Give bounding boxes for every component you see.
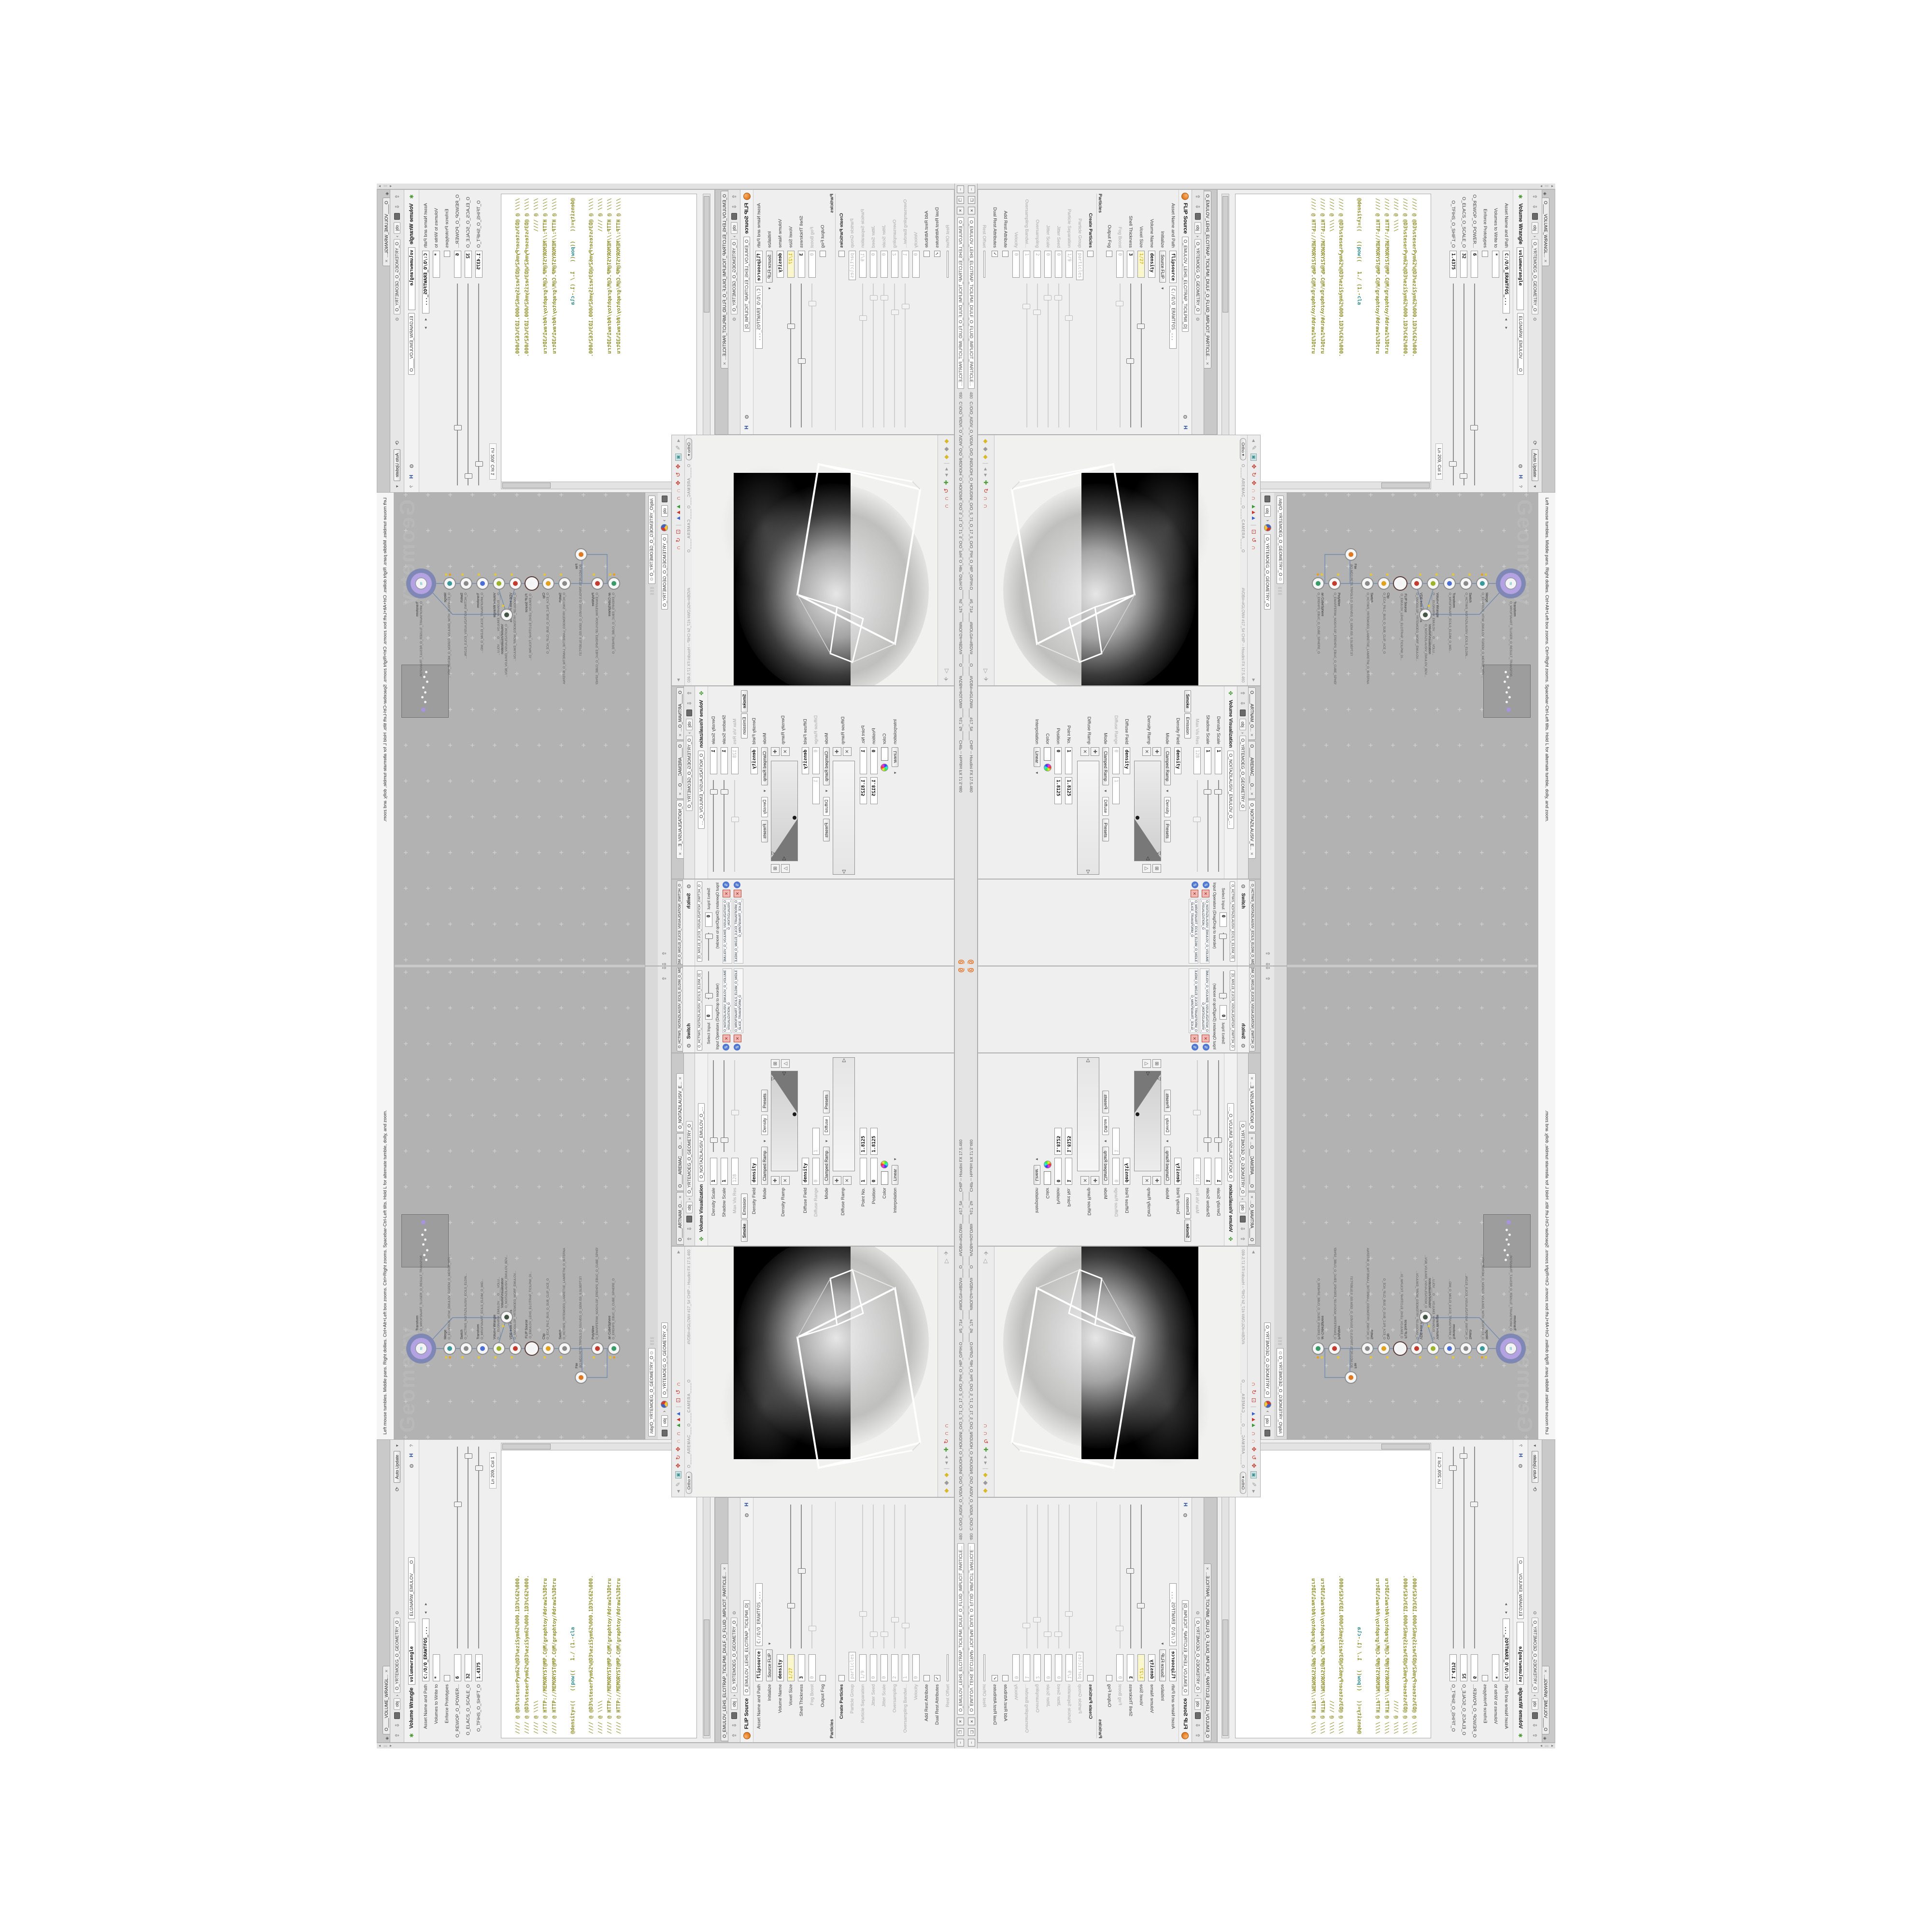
shadow-scale-field[interactable]: 1 xyxy=(1205,1158,1212,1185)
gear-icon[interactable]: ⚙ xyxy=(743,413,751,421)
magnet-c-icon[interactable]: ∩ xyxy=(943,504,950,509)
spinner-left-icon[interactable]: ◂ xyxy=(1504,316,1509,322)
create-particles-checkbox[interactable] xyxy=(838,1675,845,1681)
volviz-name-chip[interactable]: O_NOITAZILAUSIV_EMULOV_O_VO] xyxy=(698,751,705,829)
pane-edge-scrollbar[interactable]: ▲⣿▼ xyxy=(978,1743,1555,1748)
wrangle-name-field[interactable]: volumewrangle xyxy=(1517,1622,1524,1685)
density-presets-button[interactable]: Presets xyxy=(761,820,768,843)
pin-icon[interactable]: ⊙ xyxy=(1532,316,1538,322)
edit-pencil-icon[interactable]: ✎ xyxy=(675,1482,682,1487)
breadcrumb-obj[interactable]: obj xyxy=(394,1698,400,1710)
ramp-expand-icon[interactable]: ⊞ xyxy=(771,1059,780,1068)
wrangle-name-field[interactable]: volumewrangle xyxy=(1517,247,1524,310)
select-arrow-icon[interactable]: ◂ xyxy=(675,439,682,442)
scale-slider[interactable] xyxy=(1463,284,1464,485)
ortho-button[interactable]: Ortho ▾ xyxy=(1240,438,1247,460)
flip-path-select[interactable]: C:/O/O_ERAWTFOS_... xyxy=(755,1583,763,1646)
voxel-size-field[interactable]: 1/27 xyxy=(1138,1654,1145,1681)
volumes-field[interactable]: * xyxy=(433,1654,440,1681)
wrangle-name-mirror-tab[interactable]: ELGNARW_EMULOV____O xyxy=(408,1557,415,1619)
density-ramp-widget[interactable]: ◁▽ xyxy=(1134,761,1161,861)
tab-mantra[interactable]: O____ARTNAM_O...✕ xyxy=(676,687,683,740)
auto-update-button[interactable]: Auto Update xyxy=(1532,1451,1538,1483)
diffuse-presets-button[interactable]: Presets xyxy=(823,1091,830,1113)
ramp-add-icon[interactable]: ✚ xyxy=(1152,747,1161,756)
emission-tab[interactable]: Emission xyxy=(741,713,748,739)
ramp-add-icon[interactable]: ✚ xyxy=(1091,747,1099,756)
shade-diamond-icon[interactable]: ◆ xyxy=(983,439,990,443)
render-magnet-icon[interactable]: ∩ xyxy=(1250,1382,1257,1386)
node-result-transform-selected[interactable]: ≈ TransformO_MROFSNART_TLUSER_O_RESULT_T… xyxy=(1496,568,1526,598)
diffuse-field-field[interactable]: density xyxy=(1123,747,1131,774)
breadcrumb-path[interactable]: O_YRTEMOEG_O_GEOMETRY_O xyxy=(1532,239,1538,314)
emission-tab[interactable]: Emission xyxy=(1184,1193,1191,1219)
shell-thickness-field[interactable]: 3 xyxy=(798,1654,805,1681)
nav-back-icon[interactable]: ⇧ xyxy=(685,1235,693,1243)
oversampling-bandwidth-field[interactable]: 1 xyxy=(1023,251,1031,278)
add-icon[interactable]: ✚ xyxy=(943,480,950,485)
add-rest-checkbox[interactable] xyxy=(1003,1675,1009,1681)
window-restore-button[interactable]: ❐ xyxy=(957,196,964,204)
ramp-add-icon[interactable]: ✚ xyxy=(1152,1176,1161,1185)
tab-close-icon[interactable]: ✕ xyxy=(723,1567,727,1570)
network-canvas[interactable]: + + + + + + + + + + + + + + + + + + + + … xyxy=(395,493,645,965)
spinner-left-icon[interactable]: ◂ xyxy=(1504,1610,1509,1616)
remove-input-icon[interactable]: ✕ xyxy=(1202,1035,1209,1042)
network-path-tab[interactable]: /obj/O_YRTEMOEG_O_GEOMETRY_O ⊙ xyxy=(648,496,655,584)
nav-back-icon[interactable]: ⇧ xyxy=(1194,193,1202,200)
jitter-scale-field[interactable]: 0 xyxy=(1045,251,1052,278)
smoke-tab[interactable]: Smoke xyxy=(1184,690,1191,712)
vex-code-editor[interactable]: //// @ @D3%steserPym62%@D3%eziSym62%000.… xyxy=(1235,1448,1431,1738)
shift-slider[interactable] xyxy=(478,284,479,485)
shadow-scale-slider[interactable] xyxy=(1207,780,1208,872)
ramp-add-icon[interactable]: ✚ xyxy=(771,1176,780,1185)
switch-name-chip[interactable]: O_HCTIWS_NOITAZILAUSIV_ECILS_ELDIM_O] xyxy=(697,881,702,962)
initialize-select[interactable]: Source FLIP xyxy=(766,251,773,283)
shadow-scale-field[interactable]: 1 xyxy=(1205,747,1212,774)
viewport-canvas[interactable] xyxy=(994,1247,1240,1497)
position-field[interactable]: 0 xyxy=(870,747,878,774)
add-rest-checkbox[interactable] xyxy=(923,251,930,257)
diffuse-ramp-tab[interactable]: Diffuse xyxy=(823,797,830,816)
oversampling-bandwidth-field[interactable]: 1 xyxy=(902,1654,909,1681)
diffuse-ramp-widget[interactable]: ▷ xyxy=(1077,1057,1099,1171)
breadcrumb-path[interactable]: O_YRTEMOEG_O_GEOMETRY_O xyxy=(1532,1618,1538,1693)
play-icon[interactable]: ▷ xyxy=(983,669,990,673)
power-slider[interactable] xyxy=(1474,1447,1475,1648)
diffuse-range-hi[interactable]: 1 xyxy=(1113,777,1120,804)
window-close-button[interactable]: ✕ xyxy=(968,207,975,214)
density-scale-field[interactable]: 1 xyxy=(710,1158,717,1185)
add-rest-checkbox[interactable] xyxy=(1003,251,1009,257)
density-scale-field[interactable]: 1 xyxy=(1215,1158,1222,1185)
nav-back-icon[interactable]: ⇧ xyxy=(730,1732,738,1739)
shell-thickness-slider[interactable] xyxy=(1130,1505,1131,1648)
scale-tool-icon[interactable]: ✥ xyxy=(675,1447,682,1451)
ramp-del-icon[interactable]: ✕ xyxy=(1142,747,1151,756)
network-geometry-tab[interactable]: O_YRTEMOEG_O_GEOMETRY_O xyxy=(661,1322,668,1398)
breadcrumb-obj[interactable]: obj xyxy=(686,1202,693,1213)
max-vis-res-slider[interactable] xyxy=(1197,1060,1198,1152)
window-minimize-button[interactable]: – xyxy=(968,185,975,193)
select-input-field[interactable]: 0 xyxy=(1220,1005,1227,1020)
magnet-b-icon[interactable]: ∩ xyxy=(983,497,990,501)
rotate-tool-icon[interactable]: ↻ xyxy=(675,1455,682,1460)
view-box-icon[interactable]: ▣ xyxy=(1251,454,1257,461)
particle-separation-slider[interactable] xyxy=(862,284,863,427)
density-field-field[interactable]: density xyxy=(751,747,758,774)
position-field[interactable]: 0 xyxy=(870,1158,878,1185)
window-tab[interactable]: O_EMULOV_LEHS_ELCITRAP_TICILPMI_DIULF_O_… xyxy=(968,217,975,389)
scrollbar-grip[interactable]: ⣿ xyxy=(1545,185,1548,187)
frame-back-icon[interactable]: ◂ xyxy=(983,468,990,470)
breadcrumb-obj[interactable]: obj xyxy=(1239,719,1246,730)
pin-icon[interactable]: ⊙ xyxy=(1532,1610,1538,1616)
breadcrumb-path[interactable]: O_YRTEMOEG_O_GEOMETRY_O xyxy=(686,1121,693,1196)
node-result-transform-selected[interactable]: ≈ TransformO_MROFSNART_TLUSER_O_RESULT_T… xyxy=(1496,1334,1526,1364)
color-swatch[interactable] xyxy=(881,1171,888,1185)
net-down-icon[interactable]: ⇩ xyxy=(1264,960,1272,966)
oversampling-bandwidth-slider[interactable] xyxy=(1026,1505,1027,1648)
auto-update-button[interactable]: Auto Update xyxy=(394,449,400,481)
snap-magnet-dim-icon[interactable]: ∩ xyxy=(1250,1439,1257,1444)
jitter-seed-slider[interactable] xyxy=(873,1505,874,1648)
network-obj-tab[interactable]: obj xyxy=(661,1415,668,1427)
enforce-checkbox[interactable] xyxy=(444,1675,450,1681)
add-icon[interactable]: ✚ xyxy=(983,480,990,485)
particle-separation-slider[interactable] xyxy=(1069,1505,1070,1648)
scroll-down-arrow[interactable]: ▼ xyxy=(389,185,393,188)
gear-icon[interactable]: ⚙ xyxy=(408,1462,415,1470)
breadcrumb-path[interactable]: O_YRTEMOEG_O_GEOMETRY_O xyxy=(1239,736,1246,811)
gear-icon[interactable]: ⚙ xyxy=(743,1511,751,1519)
view-box-icon[interactable]: ▣ xyxy=(675,454,682,461)
rest-offset-field[interactable] xyxy=(947,1654,949,1681)
ramp-add-icon[interactable]: ✚ xyxy=(833,1176,841,1185)
input-operator-2[interactable]: O_MROFSNART_ECILS_ELDIM_O_MIDLE_SLICE_TR… xyxy=(1189,968,1198,1033)
scale-field[interactable]: 32 xyxy=(1461,1654,1468,1681)
flip-path-select[interactable]: C:/O/O_ERAWTFOS_... xyxy=(755,286,763,349)
tab-flip-source[interactable]: O_EMULOV_LEHS_ELCITRAP_TICILPMI_DIULF_O_… xyxy=(1204,1563,1211,1741)
tab-close-icon[interactable]: ✕ xyxy=(1206,362,1210,365)
color-wheel-icon[interactable] xyxy=(881,764,888,771)
point-no-field[interactable]: 1 xyxy=(860,1158,867,1185)
value1-field[interactable]: 1.8125 xyxy=(1065,1128,1073,1155)
ramp-tri-icon[interactable]: △ xyxy=(781,1059,790,1068)
voxel-size-slider[interactable] xyxy=(1141,284,1142,427)
node-result-transform-selected[interactable]: ≈ TransformO_MROFSNART_TLUSER_O_RESULT_T… xyxy=(406,568,436,598)
help-icon[interactable]: ? xyxy=(1518,1443,1523,1449)
add-icon[interactable]: ✚ xyxy=(943,1447,950,1452)
density-presets-button[interactable]: Presets xyxy=(1164,1090,1171,1112)
power-slider[interactable] xyxy=(457,284,458,485)
pane-edge-scrollbar[interactable]: ▲⣿▼ xyxy=(377,1743,954,1748)
nav-forward-icon[interactable]: ⇩ xyxy=(1531,1721,1539,1729)
create-particles-checkbox[interactable] xyxy=(1088,251,1094,257)
interpolation-select[interactable]: Linear xyxy=(892,747,898,767)
volumes-field[interactable]: * xyxy=(1492,1654,1500,1681)
snap-magnet-dim-icon[interactable]: ∩ xyxy=(675,1439,682,1444)
recook-icon[interactable]: ⟳ xyxy=(393,1485,401,1493)
remove-input-icon[interactable]: ✕ xyxy=(1202,890,1209,897)
tab-volume-wrangle[interactable]: O____VOLUME_WRANGL...✕ xyxy=(383,1666,390,1734)
oversampling-bandwidth-slider[interactable] xyxy=(1026,284,1027,427)
nav-forward-icon[interactable]: ⇩ xyxy=(393,203,401,211)
window-restore-button[interactable]: ❐ xyxy=(968,196,975,204)
net-down-icon[interactable]: ⇩ xyxy=(661,966,668,972)
rotate-tool-icon[interactable]: ↻ xyxy=(1250,472,1257,477)
volviz-name-chip[interactable]: O_NOITAZILAUSIV_EMULOV_O_VO] xyxy=(1227,1103,1234,1181)
tab-camera[interactable]: O____AREMAC___O...✕ xyxy=(1249,741,1256,799)
diffuse-mode-select[interactable]: Clamped Ramp xyxy=(1102,1147,1109,1185)
scale-tool-icon[interactable]: ✥ xyxy=(1250,1447,1257,1451)
shade-diamond2-icon[interactable]: ◆ xyxy=(983,1481,990,1485)
select-arrow-icon[interactable]: ◂ xyxy=(1250,439,1257,442)
fog-boost-field[interactable]: 0 xyxy=(809,251,816,278)
output-fog-checkbox[interactable] xyxy=(820,251,826,257)
help-icon[interactable]: ? xyxy=(1518,483,1523,489)
window-close-button[interactable]: ✕ xyxy=(968,1718,975,1725)
rest-offset-field[interactable] xyxy=(947,251,949,278)
flip-name-chip[interactable]: O_EMULOV_LEHS_ELCITRAP_TICILPMI_D] xyxy=(1182,1600,1189,1695)
shade-diamond3-icon[interactable]: ◆ xyxy=(943,1473,950,1477)
magnet-b-icon[interactable]: ∩ xyxy=(943,497,950,501)
fog-boost-slider[interactable] xyxy=(1120,284,1121,427)
ortho-button[interactable]: Ortho ▾ xyxy=(1240,1472,1247,1494)
particle-separation-field[interactable]: 1/9 xyxy=(1066,251,1073,278)
tab-close-icon[interactable]: ✕ xyxy=(1206,1567,1210,1570)
diffuse-field-field[interactable]: density xyxy=(1123,1158,1131,1185)
velocity-field[interactable]: 0 xyxy=(1013,251,1020,278)
snap-magnet-icon[interactable]: ∩ xyxy=(1250,1432,1257,1436)
jitter-seed-field[interactable]: 0 xyxy=(870,1654,877,1681)
density-ramp-widget[interactable]: ◁▽ xyxy=(771,761,798,861)
shift-slider[interactable] xyxy=(478,1447,479,1648)
select-arrow-icon[interactable]: ◂ xyxy=(1250,1490,1257,1493)
move-tool-icon[interactable]: ✥ xyxy=(1250,464,1257,469)
gear-icon[interactable]: ⚙ xyxy=(1517,1462,1524,1470)
tab-flip-source[interactable]: O_EMULOV_LEHS_ELCITRAP_TICILPMI_DIULF_O_… xyxy=(1204,191,1211,369)
shade-diamond2-icon[interactable]: ◆ xyxy=(983,447,990,451)
flip-path-select[interactable]: C:/O/O_ERAWTFOS_... xyxy=(1170,286,1177,349)
scale-slider[interactable] xyxy=(468,1447,469,1648)
oversampling-bandwidth-slider[interactable] xyxy=(905,1505,906,1648)
smoke-tab[interactable]: Smoke xyxy=(1184,1220,1191,1242)
voxel-size-field[interactable]: 1/27 xyxy=(787,251,795,278)
density-ramp-widget[interactable]: ◁▽ xyxy=(771,1071,798,1171)
flip-path-select[interactable]: C:/O/O_ERAWTFOS_... xyxy=(1170,1583,1177,1646)
breadcrumb-path[interactable]: O_YRTEMOEG_O_GEOMETRY_O xyxy=(686,736,693,811)
tab-switch[interactable]: O_HCTIWS_NOITAZILAUSIV_ECILS_ELDIM_O_MID… xyxy=(1250,881,1255,965)
recook-icon[interactable]: ⟳ xyxy=(393,439,401,447)
input-operator-2[interactable]: O_MROFSNART_ECILS_ELDIM_O_MIDLE_SLICE_TR… xyxy=(734,899,743,964)
select-input-slider[interactable] xyxy=(1223,933,1224,961)
nav-back-icon[interactable]: ⇧ xyxy=(1531,1732,1539,1739)
nav-back-icon[interactable]: ⇧ xyxy=(393,193,401,200)
render-region-icon[interactable]: ⊡ xyxy=(1250,1398,1257,1403)
gear-icon[interactable]: ⚙ xyxy=(1181,1511,1189,1519)
jitter-scale-field[interactable]: 0 xyxy=(881,1654,888,1681)
tab-volume-wrangle[interactable]: O____VOLUME_WRANGL...✕ xyxy=(1542,198,1549,266)
fly-icon[interactable]: ✈ xyxy=(983,1250,990,1255)
density-scale-slider[interactable] xyxy=(1218,1060,1219,1152)
spinner-right-icon[interactable]: ▸ xyxy=(423,1601,428,1607)
fog-boost-field[interactable]: 0 xyxy=(809,1654,816,1681)
network-obj-tab[interactable]: obj xyxy=(1264,505,1271,517)
jitter-seed-field[interactable]: 0 xyxy=(1055,1654,1063,1681)
reorder-icon[interactable]: ⇅ xyxy=(1192,1044,1198,1051)
tab-volume-visualization[interactable]: O_NOITAZILAUSIV_E...✕ xyxy=(1249,800,1256,859)
value2-field[interactable]: 1.8125 xyxy=(1055,777,1062,804)
asset-path-select[interactable]: C:/O/O_ERAWTFOS_... xyxy=(422,251,429,313)
dropdown-arrow-icon[interactable]: ▾ xyxy=(767,1641,772,1647)
density-scale-field[interactable]: 1 xyxy=(710,747,717,774)
magnet-b-icon[interactable]: ∩ xyxy=(983,1431,990,1435)
flip-name-chip[interactable]: O_EMULOV_LEHS_ELCITRAP_TICILPMI_D] xyxy=(1182,237,1189,332)
spinner-right-icon[interactable]: ▸ xyxy=(1504,1601,1509,1607)
code-vscrollbar[interactable] xyxy=(1241,1443,1431,1450)
power-slider[interactable] xyxy=(1474,284,1475,485)
diffuse-mode-select[interactable]: Clamped Ramp xyxy=(823,747,830,785)
frame-fwd-icon[interactable]: ▸ xyxy=(943,1455,950,1458)
loop-icon[interactable]: ↻ xyxy=(943,1439,950,1444)
volume-name-field[interactable]: density xyxy=(1149,251,1156,278)
dual-rest-checkbox[interactable]: ✓ xyxy=(992,251,998,257)
fog-boost-slider[interactable] xyxy=(811,1505,812,1648)
diffuse-ramp-widget[interactable]: ▷ xyxy=(833,761,855,875)
tab-close-icon[interactable]: ✕ xyxy=(384,1669,389,1673)
pane-menu-icon[interactable]: ◈ xyxy=(384,1735,390,1741)
select-input-field[interactable]: 0 xyxy=(705,912,712,927)
point-no-field[interactable]: 1 xyxy=(1065,1158,1073,1185)
flip-name-field[interactable]: flipsource xyxy=(1170,251,1177,283)
ramp-tri-icon[interactable]: △ xyxy=(1142,1059,1151,1068)
play-icon[interactable]: ▷ xyxy=(983,1259,990,1263)
magnet-c-icon[interactable]: ∩ xyxy=(943,1424,950,1428)
jitter-seed-field[interactable]: 0 xyxy=(870,251,877,278)
jitter-scale-slider[interactable] xyxy=(883,284,884,427)
loop-icon[interactable]: ↻ xyxy=(983,488,990,493)
breadcrumb-obj[interactable]: obj xyxy=(1239,1202,1246,1213)
breadcrumb-obj[interactable]: obj xyxy=(1532,222,1538,234)
shadow-scale-slider[interactable] xyxy=(1207,1060,1208,1152)
diffuse-range-lo[interactable]: 0 xyxy=(812,1158,820,1185)
remove-input-icon[interactable]: ✕ xyxy=(1191,1035,1198,1042)
max-vis-res-field[interactable]: 128 xyxy=(1194,1158,1201,1185)
scale-tool-icon[interactable]: ✥ xyxy=(675,481,682,485)
network-canvas[interactable]: + + + + + + + + + + + + + + + + + + + + … xyxy=(395,967,645,1439)
spinner-right-icon[interactable]: ▸ xyxy=(1504,325,1509,331)
spinner-left-icon[interactable]: ◂ xyxy=(423,316,428,322)
viewport-menu-icon[interactable]: ▸ xyxy=(1250,679,1257,682)
scrollbar-grip[interactable]: ⣿ xyxy=(384,1744,387,1747)
diffuse-ramp-tab[interactable]: Diffuse xyxy=(1102,1116,1109,1136)
input-operator-1[interactable]: O_NOITAZILAUSIV_EMULOV_O_VOLUME_VISUALIZ… xyxy=(723,899,732,964)
volviz-name-chip[interactable]: O_NOITAZILAUSIV_EMULOV_O_VO] xyxy=(1227,751,1234,829)
volumes-field[interactable]: * xyxy=(1492,251,1500,278)
asset-path-select[interactable]: C:/O/O_ERAWTFOS_... xyxy=(422,1619,429,1681)
oversampling-bandwidth-slider[interactable] xyxy=(905,284,906,427)
flip-name-field[interactable]: flipsource xyxy=(755,1649,763,1681)
dropdown-arrow-icon[interactable]: ▾ xyxy=(1160,1641,1165,1647)
shadow-scale-slider[interactable] xyxy=(724,1060,724,1152)
tab-switch[interactable]: O_HCTIWS_NOITAZILAUSIV_ECILS_ELDIM_O_MID… xyxy=(677,967,682,1051)
scrollbar-grip[interactable]: ⣿ xyxy=(1545,1744,1548,1747)
render-loop-icon[interactable]: ↺ xyxy=(675,538,682,542)
tab-mantra[interactable]: O____ARTNAM_O...✕ xyxy=(1249,1192,1256,1245)
enforce-checkbox[interactable] xyxy=(1482,1675,1489,1681)
tab-volume-visualization[interactable]: O_NOITAZILAUSIV_E...✕ xyxy=(676,800,683,859)
remove-input-icon[interactable]: ✕ xyxy=(1191,890,1198,897)
view-box-icon[interactable]: ▣ xyxy=(1251,1471,1257,1478)
color-swatch[interactable] xyxy=(1044,747,1051,761)
nav-back-icon[interactable]: ⇧ xyxy=(730,193,738,200)
initialize-select[interactable]: Source FLIP xyxy=(766,1649,773,1681)
max-vis-res-slider[interactable] xyxy=(734,1060,735,1152)
tab-close-icon[interactable]: ✕ xyxy=(1544,1669,1548,1673)
position-field[interactable]: 0 xyxy=(1055,747,1062,774)
nav-forward-icon[interactable]: ⇩ xyxy=(1239,699,1247,707)
shift-field[interactable]: 1.4375 xyxy=(1450,251,1457,278)
volume-name-field[interactable]: density xyxy=(777,251,784,278)
net-up-icon[interactable]: ⇧ xyxy=(661,950,668,957)
shadow-scale-field[interactable]: 1 xyxy=(721,747,728,774)
tab-close-icon[interactable]: ✕ xyxy=(723,362,727,365)
power-field[interactable]: 6 xyxy=(454,1654,461,1681)
dropdown-arrow-icon[interactable]: ▾ xyxy=(767,285,772,291)
remove-input-icon[interactable]: ✕ xyxy=(734,890,741,897)
scroll-up-arrow[interactable]: ▲ xyxy=(378,185,382,188)
breadcrumb-path[interactable]: O_YRTEMOEG_O_GEOMETRY_O xyxy=(394,239,400,314)
tab-volume-wrangle[interactable]: O____VOLUME_WRANGL...✕ xyxy=(383,198,390,266)
color-wheel-icon[interactable] xyxy=(881,1161,888,1168)
axis-tripod-icon[interactable]: ▲▲▲ xyxy=(1250,504,1257,521)
auto-update-button[interactable]: Auto Update xyxy=(394,1451,400,1483)
fly-icon[interactable]: ✈ xyxy=(943,1250,950,1255)
diffuse-range-hi[interactable]: 1 xyxy=(812,777,820,804)
diffuse-range-hi[interactable]: 1 xyxy=(1113,1128,1120,1155)
pane-menu-icon[interactable]: ◈ xyxy=(384,191,390,197)
breadcrumb-obj[interactable]: obj xyxy=(686,719,693,730)
interpolation-select[interactable]: Linear xyxy=(1034,747,1040,767)
position-field[interactable]: 0 xyxy=(1055,1158,1062,1185)
render-region-icon[interactable]: ⊡ xyxy=(675,1398,682,1403)
network-geometry-tab[interactable]: O_YRTEMOEG_O_GEOMETRY_O xyxy=(1264,534,1271,610)
edit-pencil-icon[interactable]: ✎ xyxy=(675,445,682,450)
tab-close-icon[interactable]: ✕ xyxy=(1544,259,1548,263)
max-vis-res-field[interactable]: 128 xyxy=(731,747,739,774)
breadcrumb-path[interactable]: O_YRTEMOEG_O_GEOMETRY_O xyxy=(1194,1618,1201,1693)
ramp-expand-icon[interactable]: ⊞ xyxy=(771,864,780,873)
shadow-scale-slider[interactable] xyxy=(724,780,724,872)
scale-field[interactable]: 32 xyxy=(1461,251,1468,278)
spinner-right-icon[interactable]: ▸ xyxy=(423,325,428,331)
play-icon[interactable]: ▷ xyxy=(943,1259,950,1263)
vex-code-editor[interactable]: //// @ @D3%steserPym62%@D3%eziSym62%000.… xyxy=(501,194,697,484)
tab-switch[interactable]: O_HCTIWS_NOITAZILAUSIV_ECILS_ELDIM_O_MID… xyxy=(1250,967,1255,1051)
oversampling-field[interactable]: 2 xyxy=(891,251,898,278)
oversampling-field[interactable]: 2 xyxy=(891,1654,898,1681)
loop-icon[interactable]: ↻ xyxy=(983,1439,990,1444)
fly-icon[interactable]: ✈ xyxy=(983,677,990,682)
nav-back-icon[interactable]: ⇧ xyxy=(1194,1732,1202,1739)
value1-field[interactable]: 1.8125 xyxy=(860,777,867,804)
density-presets-button[interactable]: Presets xyxy=(761,1090,768,1112)
velocity-field[interactable]: 0 xyxy=(912,1654,920,1681)
shell-thickness-slider[interactable] xyxy=(801,284,802,427)
diffuse-ramp-widget[interactable]: ▷ xyxy=(1077,761,1099,875)
